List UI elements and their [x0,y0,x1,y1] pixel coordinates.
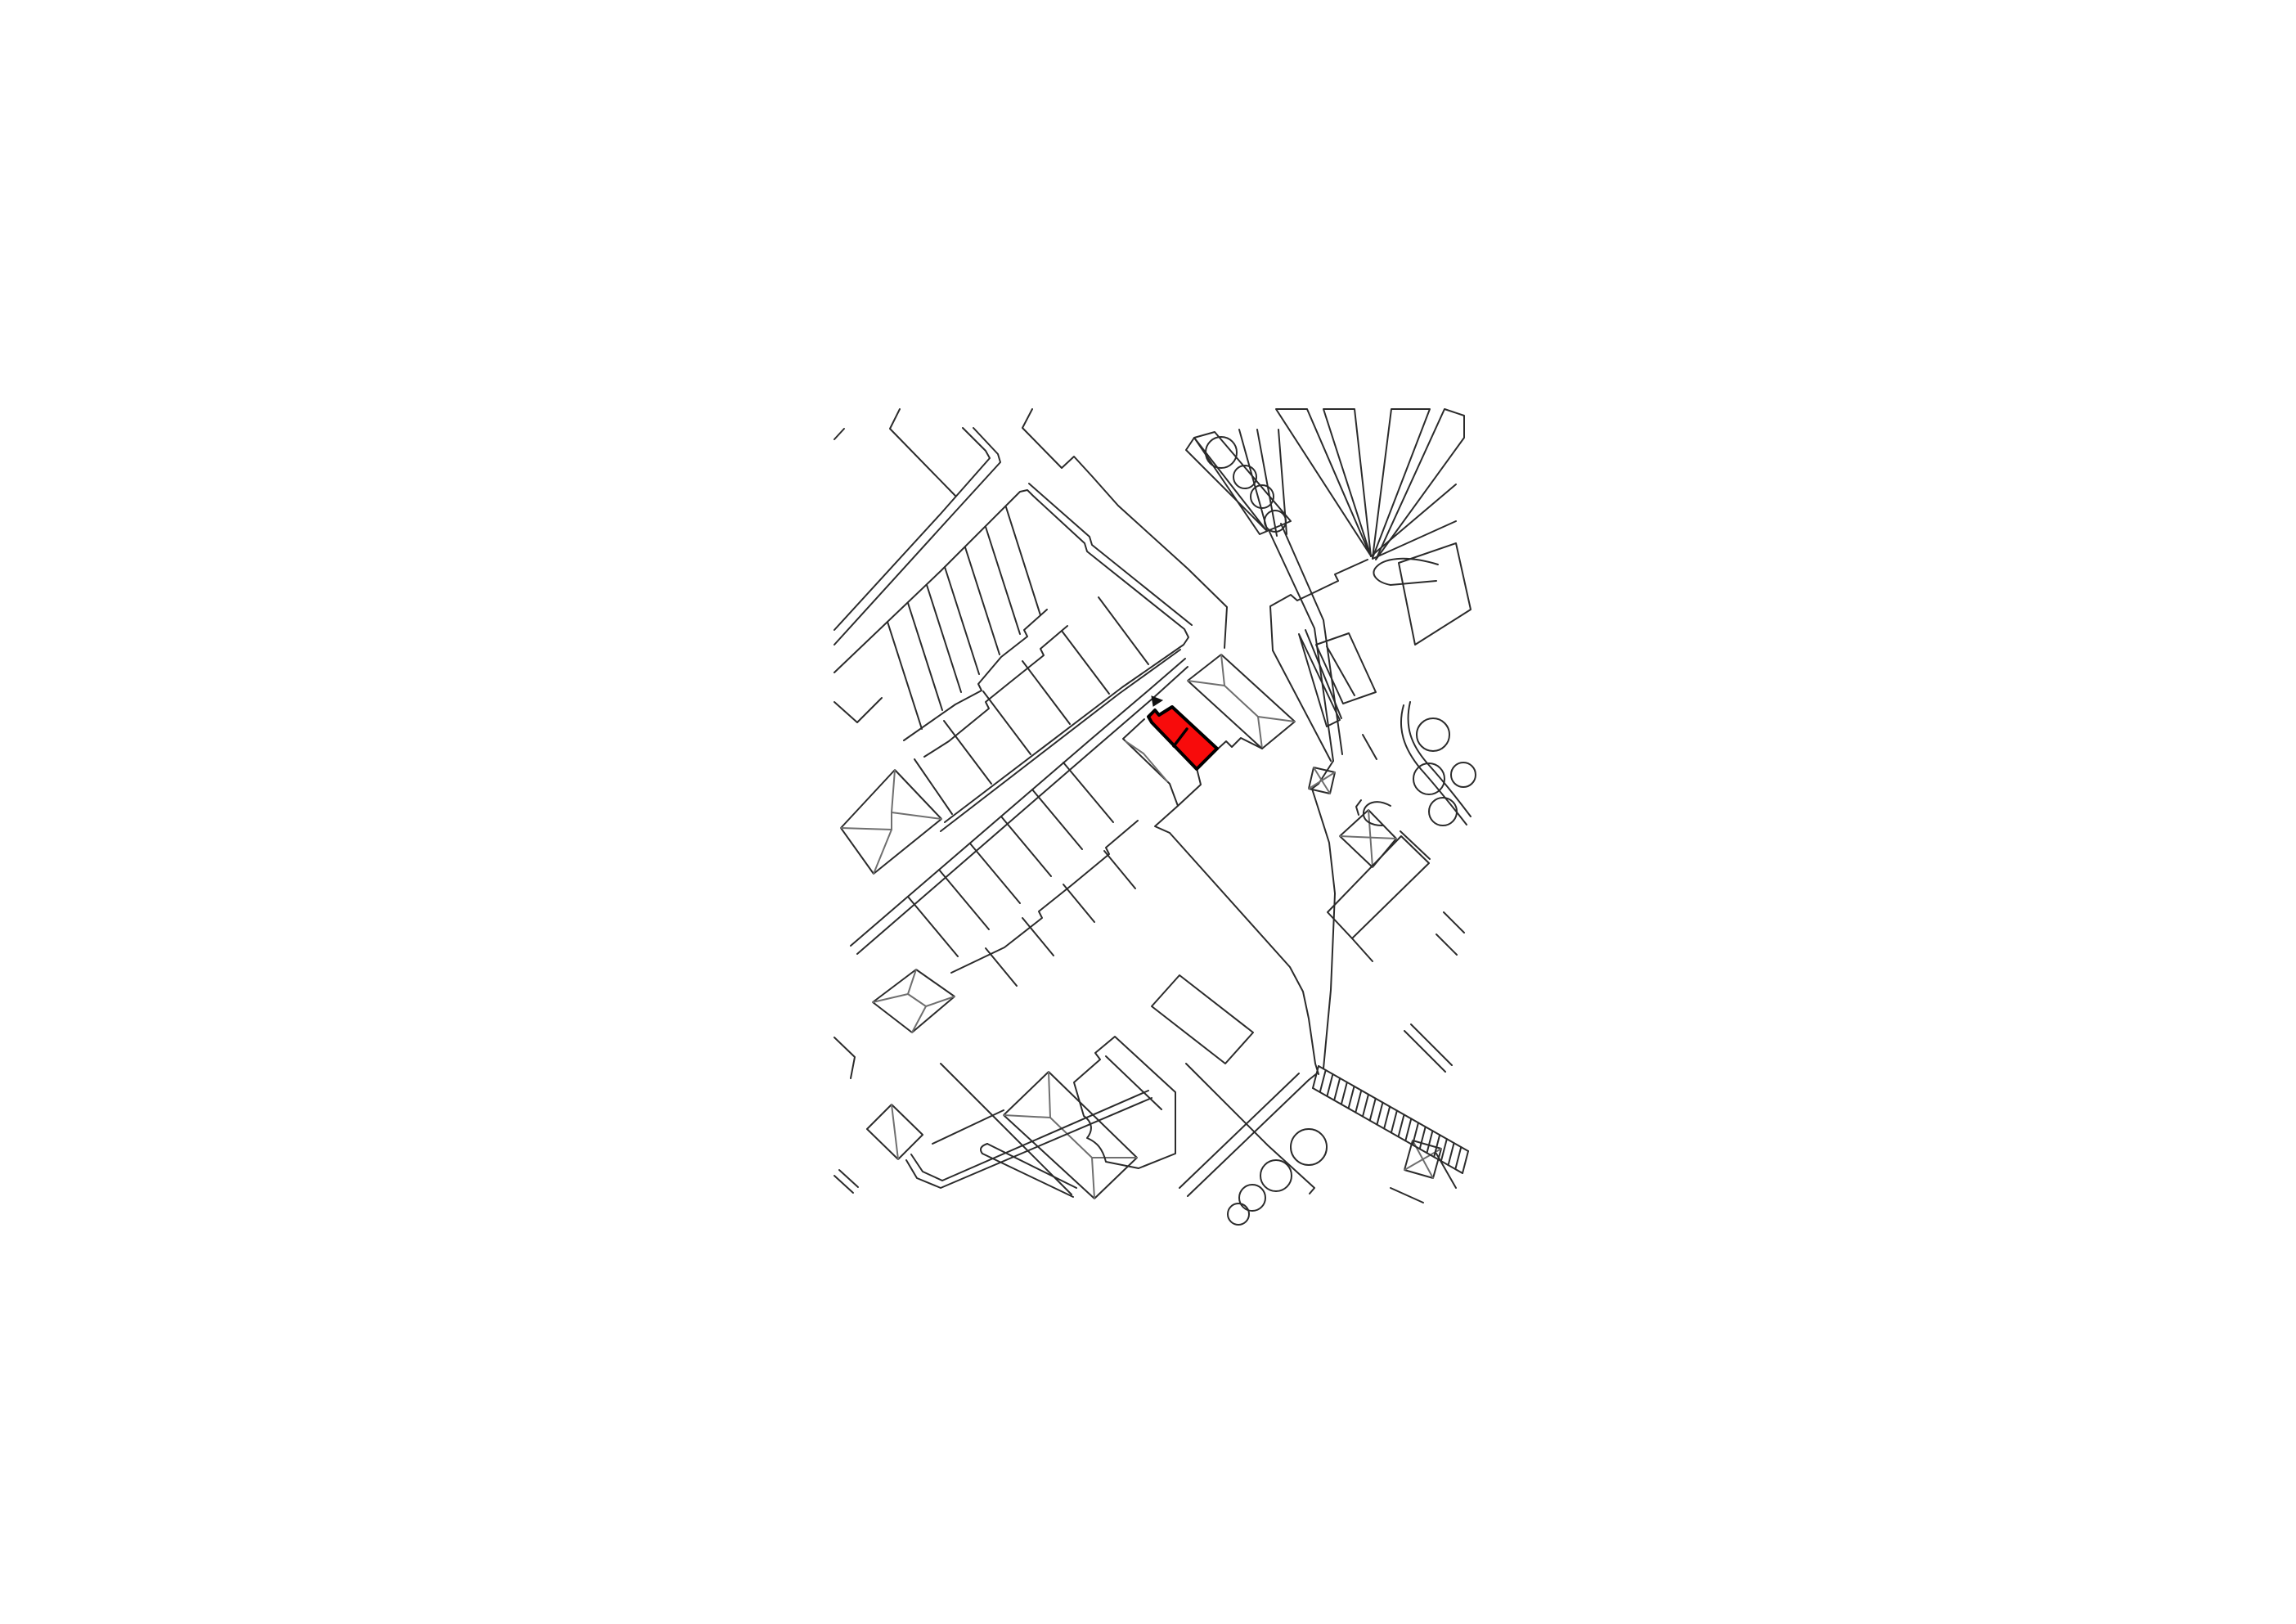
building-outline [982,1154,1073,1197]
building-outline [1371,484,1456,556]
building-outline [926,996,955,1006]
building-outline [1373,409,1430,558]
stairs-hatch-line [1420,1127,1426,1149]
building-outline [1273,650,1331,761]
building-outline [1269,532,1333,761]
building-outline [904,610,1047,740]
building-outline [914,759,952,814]
building-outline [951,821,1138,973]
location-arrow-icon [1152,696,1162,706]
stairs-hatch-line [1334,1078,1340,1100]
building-outline [1062,631,1109,694]
building-outline [908,897,958,956]
building-outline [1436,1154,1456,1188]
tree-circle [1291,1129,1327,1165]
stairs-hatch-line [1384,1107,1390,1129]
site-plan-drawing [0,0,2296,1624]
building-outline [1152,975,1253,1064]
building-outline [1178,768,1201,806]
building-outline [911,1091,1148,1181]
building-outline [941,1064,1072,1194]
building-outline [1221,655,1224,686]
stairs-hatch-line [1327,1074,1332,1096]
building-outline [1029,484,1192,625]
building-outline [1004,1115,1050,1118]
building-outline [1188,1073,1317,1196]
building-outline [1032,790,1082,849]
building-outline [1436,934,1457,955]
building-outline [1022,661,1070,724]
building-outline [939,870,989,929]
tree-circle [1417,718,1449,751]
highlighted-building[interactable] [1148,707,1217,769]
building-outline [983,691,1031,754]
building-outline [965,547,1000,655]
building-outline [1356,800,1361,815]
tree-circle [1429,798,1457,825]
building-outline [1022,918,1054,956]
building-outline [1323,409,1371,556]
building-outline [1328,836,1429,938]
building-outline [1391,1188,1423,1203]
building-outline [1316,633,1376,704]
building-outline [1179,1073,1299,1188]
stairs-hatch-line [1313,1066,1319,1088]
building-outline [1022,409,1227,648]
stairs-hatch-line [1441,1139,1447,1161]
tree-circle [1260,1160,1292,1191]
building-outline [1092,1158,1094,1199]
page-background [0,0,2296,1624]
building-outline [986,948,1017,986]
building-outline [1257,430,1277,536]
building-outline [892,1104,898,1159]
building-outline [1216,738,1262,750]
stairs-hatch-line [1319,1066,1468,1151]
stairs-hatch-line [1463,1151,1468,1173]
stairs-hatch-line [1449,1143,1454,1165]
building-outline [1099,597,1148,664]
stairs-hatch-line [1313,1088,1463,1173]
building-outline [834,490,1188,822]
building-outline [1063,763,1113,822]
building-outline [1404,1031,1445,1072]
building-outline [986,527,1020,634]
building-outline [1363,735,1377,759]
stairs-hatch-line [1391,1110,1397,1132]
building-outline [1224,686,1258,717]
building-outline [1276,409,1370,555]
building-outline [1106,1056,1161,1109]
building-outline [839,1170,858,1187]
stairs-hatch-line [1370,1099,1376,1121]
tree-circle [1228,1203,1249,1225]
building-outline [912,1006,926,1032]
building-outline [908,994,926,1006]
building-outline [1411,1024,1452,1065]
building-outline [970,843,1020,903]
stairs-hatch-line [1377,1103,1382,1125]
building-outline [892,770,895,812]
building-outline [1001,816,1051,876]
building-outline [1194,432,1291,534]
building-outline [1186,1064,1314,1194]
building-outline [1340,836,1396,839]
stairs-hatch-line [1363,1095,1368,1117]
building-outline [834,1176,853,1193]
building-outline [932,1110,1004,1144]
building-outline [834,428,990,630]
building-outline [1270,560,1368,650]
building-outline [1104,851,1135,888]
building-outline [851,659,1185,946]
building-outline [1074,1037,1175,1168]
stairs-hatch-line [1427,1131,1432,1153]
stairs-hatch-line [1349,1086,1355,1109]
building-outline [841,828,892,830]
building-outline [981,1144,987,1154]
building-outline [1364,802,1391,825]
building-outline [987,1144,1076,1188]
building-outline [892,812,941,819]
tree-circle [1451,763,1476,787]
stairs-hatch-line [1455,1147,1461,1169]
stairs-hatch-line [1320,1070,1326,1092]
building-outline [1063,884,1094,922]
building-outline [941,650,1180,831]
building-outline [834,429,844,439]
building-outline [1258,717,1262,749]
building-outline [1004,1072,1137,1199]
stairs-hatch-line [1355,1091,1361,1113]
building-outline [1006,507,1040,615]
building-outline [1400,831,1430,859]
building-outline [1374,559,1438,585]
stairs-hatch-line [1341,1082,1347,1104]
building-outline [834,1037,855,1078]
building-outline [890,409,955,496]
building-outline [1444,912,1464,933]
building-outline [1312,761,1335,1068]
building-outline [1352,938,1373,961]
stairs-hatch-line [1399,1114,1404,1136]
building-outline [834,698,882,722]
building-outline [1368,810,1373,867]
stairs-hatch-line [1405,1118,1411,1140]
building-outline [857,667,1188,954]
building-outline [1049,1072,1050,1118]
building-outline [887,622,922,729]
tree-circle [1239,1185,1265,1211]
building-outline [944,721,991,784]
